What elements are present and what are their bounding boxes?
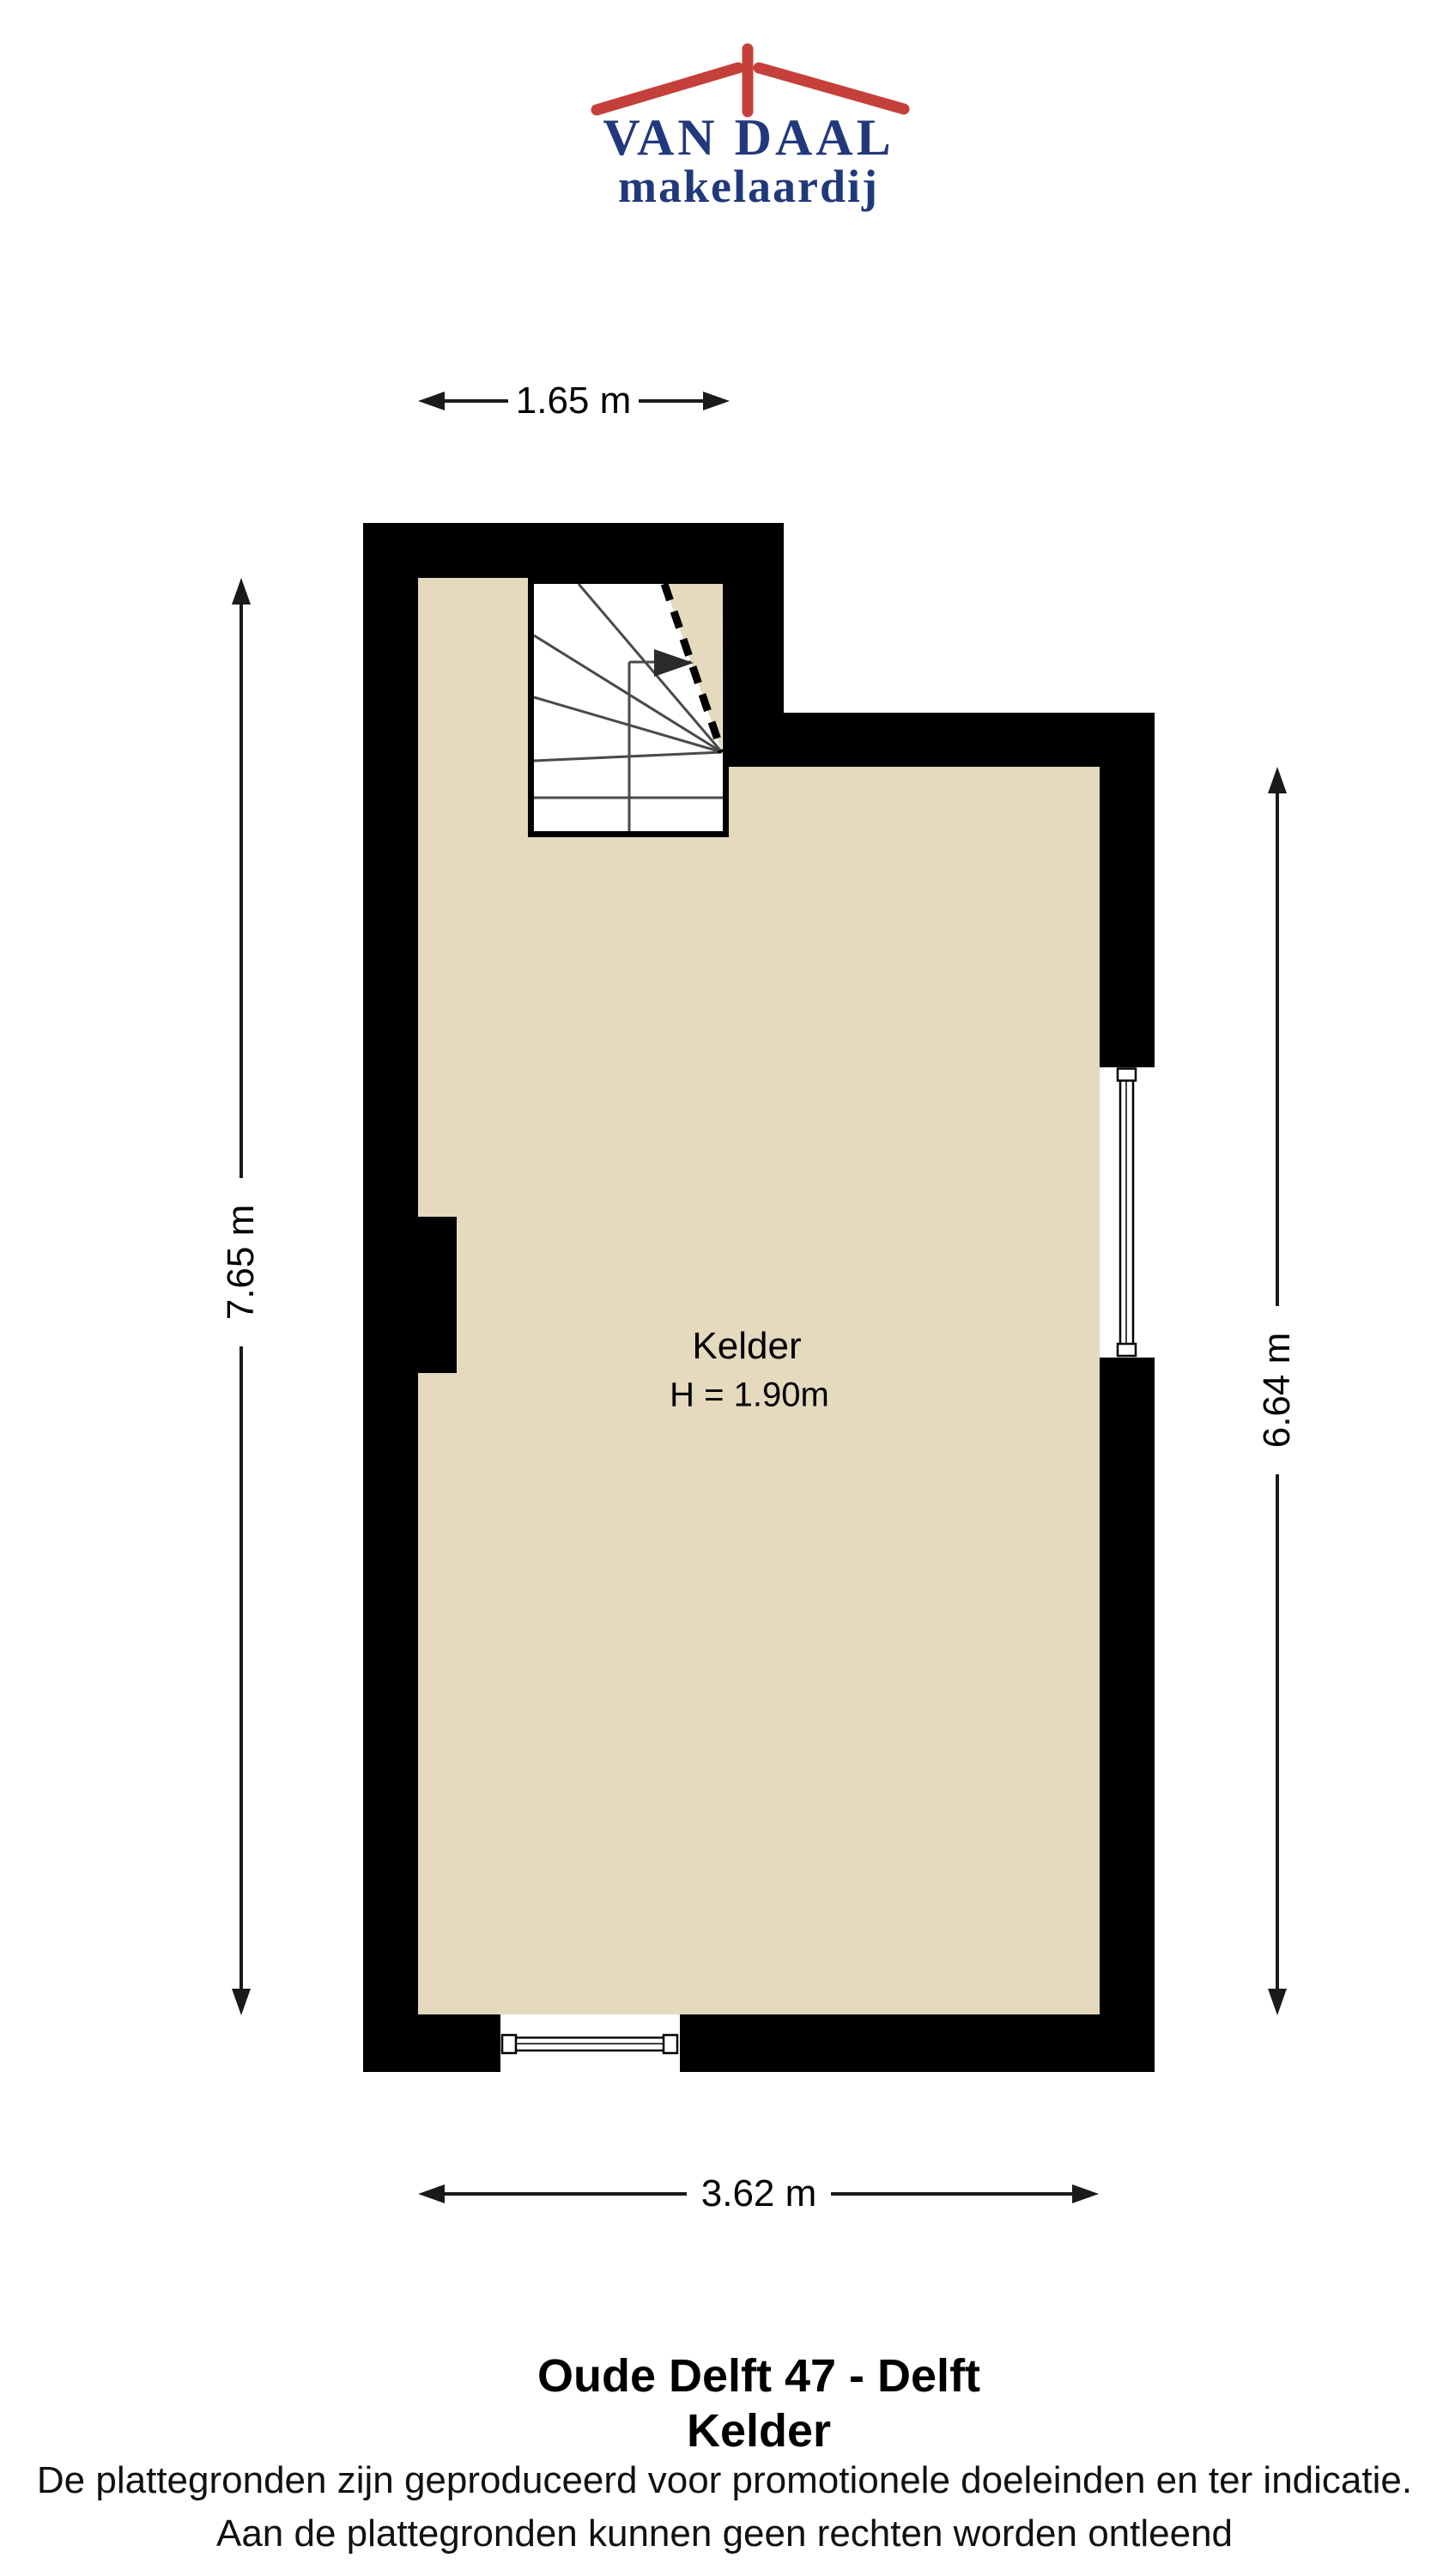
- arrowhead-left-icon: [418, 2184, 445, 2203]
- disclaimer-line1: De plattegronden zijn geproduceerd voor …: [37, 2459, 1412, 2502]
- floorplan-page: VAN DAAL makelaardij: [0, 0, 1449, 2576]
- arrowhead-right-icon: [703, 392, 730, 410]
- arrowhead-down-icon: [1268, 1989, 1287, 2015]
- arrowhead-down-icon: [232, 1989, 251, 2015]
- wall-bottom-right: [680, 2014, 1155, 2072]
- dimension-right-label: 6.64 m: [1256, 1327, 1299, 1454]
- window-bottom: [500, 2014, 680, 2072]
- arrowhead-up-icon: [1268, 767, 1287, 793]
- staircase: [528, 578, 729, 837]
- brand-tagline: makelaardij: [618, 160, 879, 213]
- arrowhead-right-icon: [1072, 2184, 1099, 2203]
- wall-bottom-left: [363, 2014, 500, 2072]
- agency-logo: [577, 34, 920, 120]
- page-subtitle: Kelder: [687, 2404, 831, 2458]
- wall-right-lower: [1100, 1358, 1155, 2072]
- wall-left: [363, 523, 418, 2072]
- wall-pilaster: [418, 1217, 457, 1373]
- wall-top: [363, 523, 784, 578]
- roof-icon: [577, 34, 920, 120]
- arrowhead-left-icon: [418, 392, 445, 410]
- room-name-label: Kelder: [692, 1325, 801, 1368]
- room-height-label: H = 1.90m: [670, 1376, 829, 1415]
- page-title: Oude Delft 47 - Delft: [537, 2349, 980, 2403]
- wall-rightwing-top: [729, 713, 1155, 767]
- wall-right-upper: [1100, 713, 1155, 1067]
- disclaimer-line2: Aan de plattegronden kunnen geen rechten…: [216, 2512, 1233, 2555]
- window-right: [1100, 1067, 1155, 1358]
- dimension-top-label: 1.65 m: [511, 380, 637, 422]
- arrowhead-up-icon: [232, 578, 251, 605]
- brand-name: VAN DAAL: [603, 108, 894, 167]
- dimension-bottom-label: 3.62 m: [696, 2172, 822, 2215]
- dimension-left-label: 7.65 m: [220, 1200, 263, 1326]
